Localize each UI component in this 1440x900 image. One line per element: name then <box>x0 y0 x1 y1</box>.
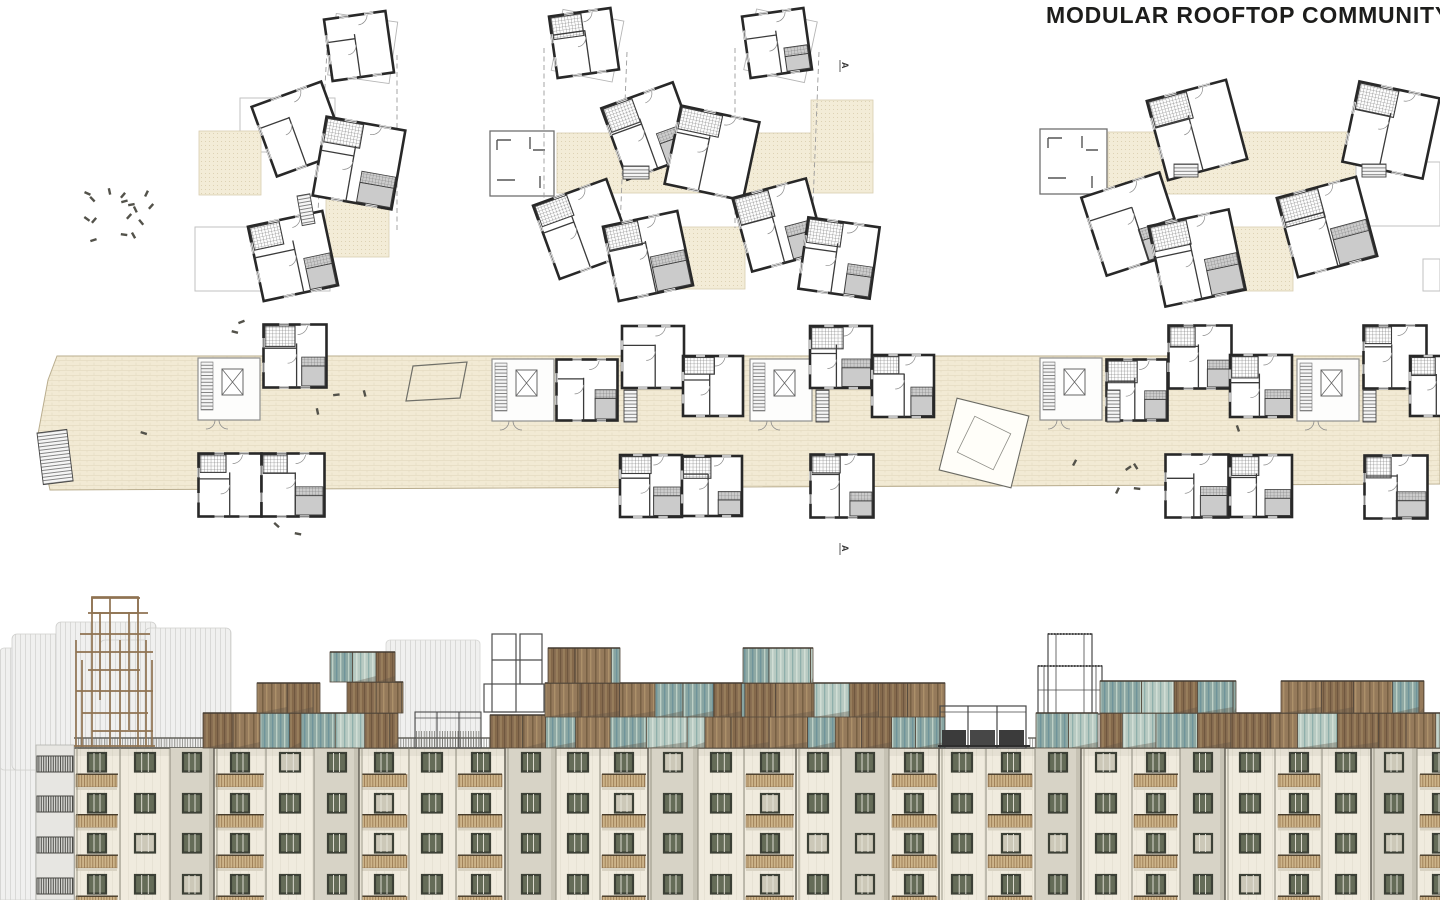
svg-text:A: A <box>840 545 850 552</box>
svg-text:A: A <box>840 62 850 69</box>
svg-text:MODULAR ROOFTOP COMMUNITY: MODULAR ROOFTOP COMMUNITY <box>1046 2 1440 28</box>
